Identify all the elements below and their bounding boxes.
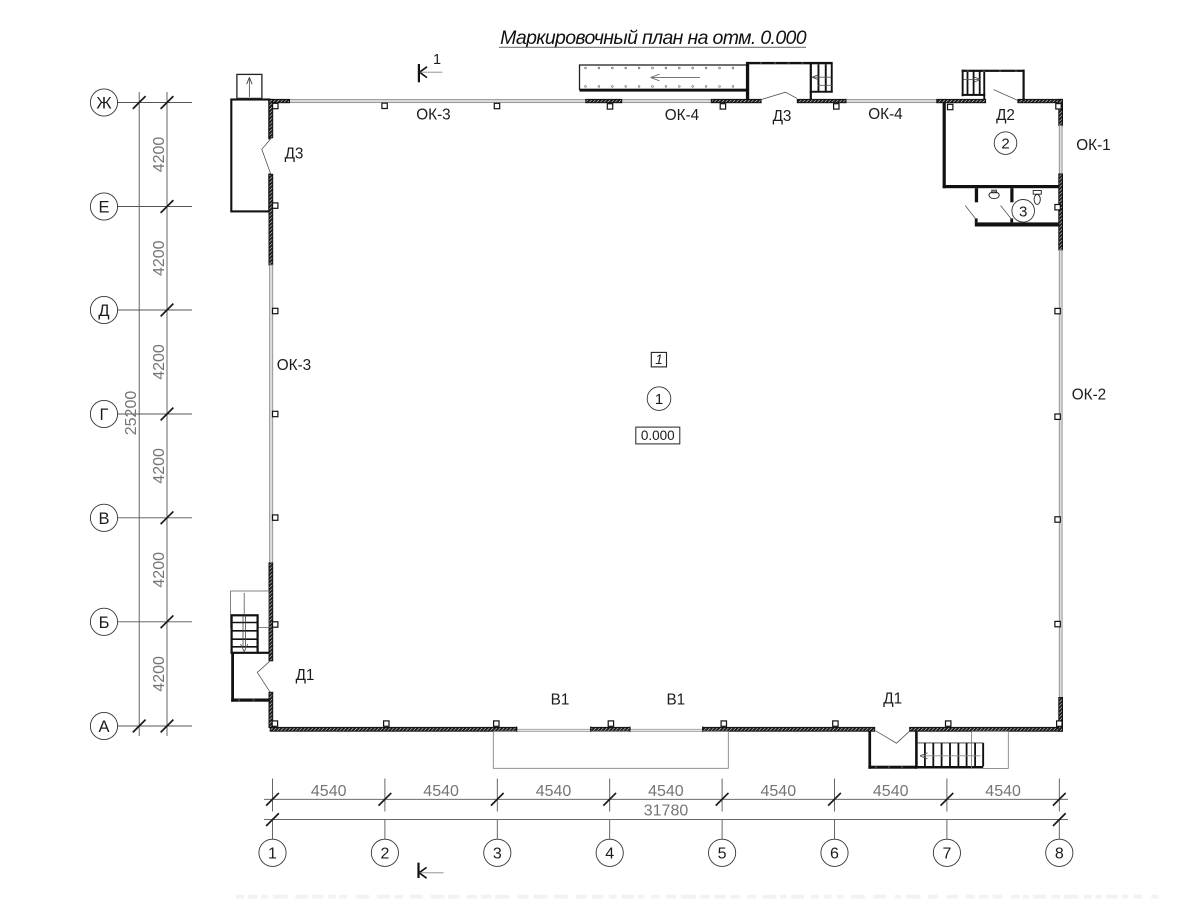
svg-text:ОК-4: ОК-4	[868, 106, 903, 123]
svg-text:4540: 4540	[648, 783, 684, 800]
svg-text:ОК-1: ОК-1	[1076, 137, 1110, 154]
svg-text:4540: 4540	[761, 783, 797, 800]
svg-text:0.000: 0.000	[641, 428, 675, 443]
svg-text:ОК-2: ОК-2	[1072, 387, 1106, 404]
svg-text:Д: Д	[98, 302, 109, 320]
svg-text:В1: В1	[666, 692, 685, 709]
svg-text:8: 8	[1055, 846, 1064, 863]
svg-text:В: В	[98, 510, 109, 528]
svg-text:Маркировочный план на отм. 0.0: Маркировочный план на отм. 0.000	[500, 27, 807, 49]
svg-text:4540: 4540	[536, 783, 572, 800]
svg-text:Г: Г	[100, 406, 109, 424]
svg-text:4200: 4200	[151, 137, 168, 173]
svg-text:ОК-3: ОК-3	[277, 357, 311, 374]
svg-text:Ж: Ж	[96, 95, 112, 113]
svg-text:3: 3	[493, 846, 502, 863]
svg-text:3: 3	[1019, 203, 1027, 220]
svg-text:Д1: Д1	[883, 691, 902, 708]
svg-text:25200: 25200	[123, 391, 140, 436]
svg-text:ОК-3: ОК-3	[416, 107, 450, 124]
svg-text:4200: 4200	[151, 240, 168, 276]
svg-text:5: 5	[718, 846, 727, 863]
svg-text:1: 1	[433, 52, 441, 68]
svg-text:31780: 31780	[644, 803, 689, 820]
svg-text:1: 1	[655, 391, 663, 408]
svg-text:4540: 4540	[873, 783, 909, 800]
svg-text:4: 4	[605, 846, 614, 863]
svg-text:6: 6	[830, 846, 839, 863]
svg-text:Д3: Д3	[285, 146, 304, 163]
svg-text:4540: 4540	[423, 783, 459, 800]
svg-text:Е: Е	[98, 199, 109, 217]
svg-text:Д3: Д3	[773, 108, 792, 125]
svg-text:2: 2	[1001, 136, 1009, 153]
svg-text:1: 1	[655, 352, 663, 367]
svg-text:А: А	[98, 718, 109, 736]
svg-text:Д2: Д2	[996, 107, 1015, 124]
svg-text:ОК-4: ОК-4	[665, 107, 700, 124]
svg-text:4200: 4200	[151, 656, 168, 692]
svg-text:1: 1	[268, 846, 277, 863]
svg-text:4540: 4540	[311, 783, 347, 800]
svg-text:2: 2	[380, 846, 389, 863]
svg-text:Б: Б	[99, 614, 110, 632]
svg-text:4200: 4200	[151, 344, 168, 380]
svg-text:В1: В1	[551, 692, 570, 709]
svg-text:4200: 4200	[151, 448, 168, 484]
svg-text:7: 7	[942, 846, 951, 863]
svg-text:Д1: Д1	[296, 667, 315, 684]
svg-text:4200: 4200	[151, 552, 168, 588]
svg-text:4540: 4540	[985, 783, 1021, 800]
